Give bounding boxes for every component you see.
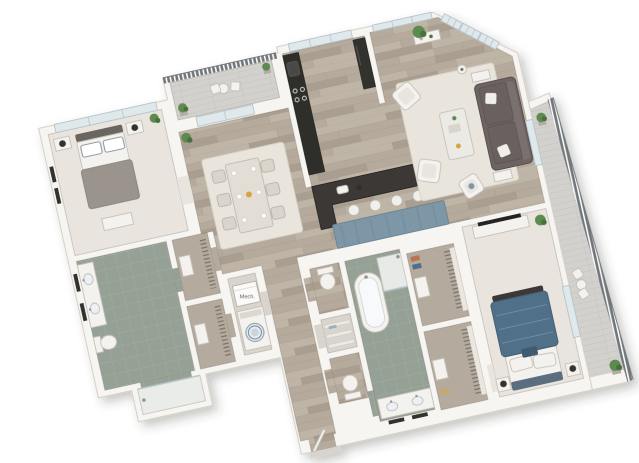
- floorplan-render: Mech.: [0, 0, 639, 463]
- mechanical-unit: Mech.: [232, 281, 260, 307]
- bistro-chair: [231, 82, 240, 91]
- dining-chair: [265, 182, 280, 197]
- dining-chair: [222, 216, 237, 231]
- dining-chair: [260, 158, 275, 173]
- armchair: [417, 159, 442, 184]
- floorplan-page: Mech.: [0, 0, 639, 463]
- dining-chair: [211, 169, 226, 184]
- dining-chair: [216, 193, 231, 208]
- mech-label: Mech.: [240, 294, 256, 300]
- dining-chair: [270, 205, 285, 220]
